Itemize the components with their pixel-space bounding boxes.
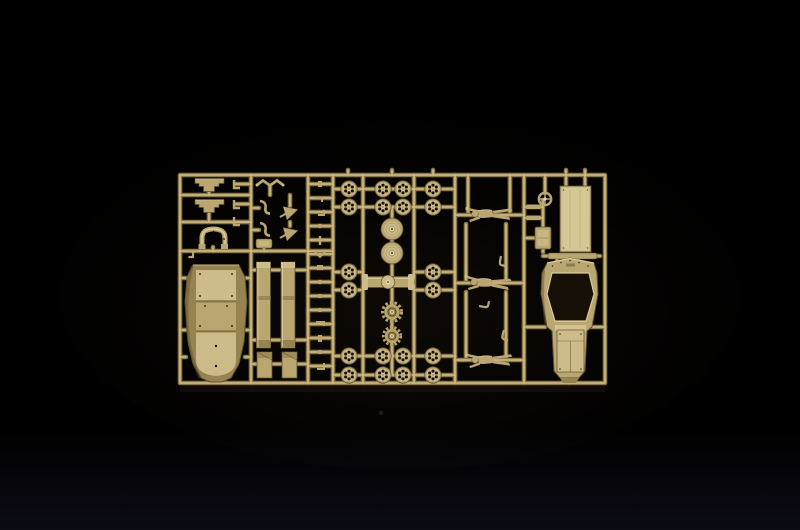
road-wheel xyxy=(425,367,441,383)
photo-stage xyxy=(0,0,800,530)
hull-bottom-tub xyxy=(185,265,247,382)
road-wheel xyxy=(341,199,357,215)
road-wheel xyxy=(395,367,411,383)
road-wheel xyxy=(341,348,357,364)
road-wheel xyxy=(375,348,391,364)
road-wheel xyxy=(425,264,441,280)
road-wheel xyxy=(425,181,441,197)
road-wheel xyxy=(375,181,391,197)
road-wheel xyxy=(341,264,357,280)
small-box-part xyxy=(256,239,272,248)
sprue-shadow xyxy=(180,386,605,392)
road-wheel xyxy=(395,199,411,215)
road-wheel xyxy=(341,282,357,298)
steering-wheel xyxy=(539,193,551,205)
road-wheel xyxy=(341,367,357,383)
wheel-disc xyxy=(381,218,403,240)
axle-assembly xyxy=(362,274,414,290)
road-wheel xyxy=(341,181,357,197)
radiator-panel xyxy=(560,186,591,252)
road-wheel xyxy=(375,199,391,215)
reflection-dot xyxy=(379,411,384,416)
road-wheel xyxy=(425,348,441,364)
wheel-disc xyxy=(381,242,403,264)
road-wheel xyxy=(375,367,391,383)
road-wheel xyxy=(395,181,411,197)
sprue-photo xyxy=(0,0,800,530)
road-wheel xyxy=(395,348,411,364)
road-wheel xyxy=(425,199,441,215)
storage-box xyxy=(535,227,551,249)
background xyxy=(0,0,800,530)
road-wheel xyxy=(425,282,441,298)
